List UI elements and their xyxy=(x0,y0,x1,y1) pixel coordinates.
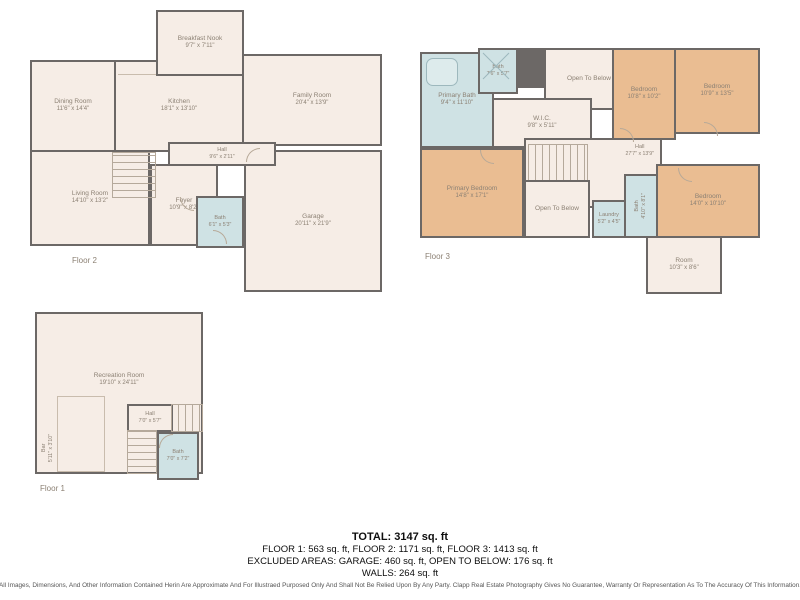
room-label: Kitchen 18'1" x 13'10" xyxy=(161,98,197,114)
room-bedroom-2: Bedroom 10'9" x 13'5" xyxy=(674,48,760,134)
room-label: Primary Bath 9'4" x 11'10" xyxy=(438,92,476,108)
room-bath-upper: Bath 7'6" x 5'7" xyxy=(478,48,518,94)
room-label: Room 10'3" x 8'6" xyxy=(669,257,699,273)
bathtub-icon xyxy=(426,58,458,86)
room-label: Recreation Room 19'10" x 24'11" xyxy=(37,372,201,388)
floor-3-plan: Primary Bath 9'4" x 11'10" Bath 7'6" x 5… xyxy=(420,40,772,302)
floor-areas-text: FLOOR 1: 563 sq. ft, FLOOR 2: 1171 sq. f… xyxy=(0,544,800,555)
room-label: W.I.C. 9'8" x 5'11" xyxy=(527,115,556,131)
room-label: Bar 5'11" x 3'10" xyxy=(41,434,55,462)
total-area-text: TOTAL: 3147 sq. ft xyxy=(0,531,800,543)
stairs xyxy=(112,152,156,198)
room-primary-bedroom: Primary Bedroom 14'8" x 17'1" xyxy=(420,148,524,238)
room-label: Garage 20'11" x 21'9" xyxy=(295,213,331,229)
room-label: Bedroom 14'0" x 10'10" xyxy=(690,193,726,209)
floor-2-plan: Dining Room 11'6" x 14'4" Kitchen 18'1" … xyxy=(30,10,382,302)
floor-3-label: Floor 3 xyxy=(425,252,450,261)
room-bar: Bar 5'11" x 3'10" xyxy=(39,420,57,476)
room-label: Bath 7'0" x 7'2" xyxy=(167,449,190,463)
room-label: Open To Below xyxy=(535,205,579,213)
disclaimer-text: All Images, Dimensions, And Other Inform… xyxy=(0,582,800,589)
floor-2-label: Floor 2 xyxy=(72,256,97,265)
room-label: Family Room 20'4" x 13'9" xyxy=(293,92,331,108)
shower-icon xyxy=(482,52,510,80)
room-laundry: Laundry 5'2" x 4'5" xyxy=(592,200,626,238)
walls-area-text: WALLS: 264 sq. ft xyxy=(0,568,800,579)
room-bedroom-1: Bedroom 10'8" x 10'2" xyxy=(612,48,676,140)
area-summary: TOTAL: 3147 sq. ft FLOOR 1: 563 sq. ft, … xyxy=(0,531,800,579)
room-family-room: Family Room 20'4" x 13'9" xyxy=(242,54,382,146)
room-bedroom-3: Bedroom 14'0" x 10'10" xyxy=(656,164,760,238)
room-label: Living Room 14'10" x 13'2" xyxy=(72,190,108,206)
floor-1-plan: Recreation Room 19'10" x 24'11" Hall 7'0… xyxy=(35,308,217,494)
room-dining-room: Dining Room 11'6" x 14'4" xyxy=(30,60,116,152)
room-label: Hall 7'0" x 5'7" xyxy=(139,411,162,425)
room-label: Open To Below xyxy=(567,75,611,83)
stairs xyxy=(171,404,203,432)
room-label: Bath 6'1" x 5'3" xyxy=(209,215,232,229)
room-bottom: Room 10'3" x 8'6" xyxy=(646,236,722,294)
floor-1-label: Floor 1 xyxy=(40,484,65,493)
room-label: Breakfast Nook 9'7" x 7'11" xyxy=(178,35,222,51)
stairs xyxy=(127,430,157,474)
room-label: Hall 9'6" x 2'11" xyxy=(209,147,234,161)
room-breakfast-nook: Breakfast Nook 9'7" x 7'11" xyxy=(156,10,244,76)
room-open-to-below-mid: Open To Below xyxy=(524,180,590,238)
room-label: Hall 27'7" x 13'9" xyxy=(626,144,654,158)
room-garage: Garage 20'11" x 21'9" xyxy=(244,150,382,292)
room-bath-hall: Bath 4'10" x 8'1" xyxy=(624,174,658,238)
room-label: Bedroom 10'9" x 13'5" xyxy=(701,83,734,99)
room-label: Bedroom 10'8" x 10'2" xyxy=(628,86,661,102)
room-label: Dining Room 11'6" x 14'4" xyxy=(54,98,92,114)
bar-counter xyxy=(57,396,105,472)
room-hall: Hall 7'0" x 5'7" xyxy=(127,404,173,432)
room-label: Bath 4'10" x 8'1" xyxy=(634,193,648,219)
room-label: Primary Bedroom 14'8" x 17'1" xyxy=(447,185,498,201)
room-label: Laundry 5'2" x 4'5" xyxy=(598,212,621,226)
excluded-areas-text: EXCLUDED AREAS: GARAGE: 460 sq. ft, OPEN… xyxy=(0,556,800,567)
